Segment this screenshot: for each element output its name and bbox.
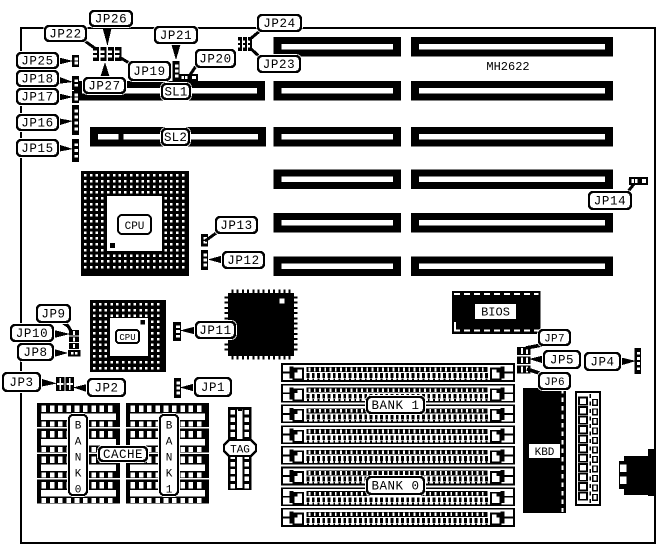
svg-text:JP3: JP3 [9,376,33,390]
svg-text:A: A [75,437,82,449]
svg-text:JP4: JP4 [590,356,614,370]
svg-text:JP24: JP24 [263,17,295,31]
svg-text:JP18: JP18 [21,73,53,87]
svg-text:JP12: JP12 [227,254,259,268]
svg-text:JP20: JP20 [199,53,231,67]
svg-text:CPU: CPU [119,333,135,343]
svg-text:JP27: JP27 [88,80,120,94]
svg-text:KBD: KBD [535,447,555,459]
svg-text:JP13: JP13 [220,219,252,233]
svg-text:JP23: JP23 [263,58,295,72]
svg-text:JP7: JP7 [544,334,565,346]
svg-text:JP9: JP9 [41,308,65,322]
svg-text:JP14: JP14 [594,195,626,209]
svg-text:JP22: JP22 [49,28,81,42]
svg-text:B: B [75,421,82,433]
svg-text:BANK 1: BANK 1 [371,399,419,413]
svg-text:A: A [166,437,173,449]
svg-text:CACHE: CACHE [103,448,143,462]
svg-text:1: 1 [166,485,173,497]
svg-text:SL2: SL2 [164,131,187,145]
svg-text:JP5: JP5 [550,354,574,368]
svg-text:JP8: JP8 [23,346,47,360]
svg-text:BANK 0: BANK 0 [371,480,419,494]
svg-text:JP21: JP21 [160,29,192,43]
svg-text:CPU: CPU [125,221,145,233]
svg-text:JP26: JP26 [95,13,127,27]
svg-text:JP17: JP17 [21,91,53,105]
svg-text:N: N [75,453,82,465]
svg-text:BIOS: BIOS [481,306,510,320]
svg-text:TAG: TAG [230,445,250,457]
svg-text:N: N [166,453,173,465]
svg-text:K: K [75,469,82,481]
svg-text:0: 0 [75,485,82,497]
svg-text:K: K [166,469,173,481]
svg-text:JP15: JP15 [21,142,53,156]
svg-text:JP25: JP25 [21,55,53,69]
svg-text:JP2: JP2 [94,382,118,396]
svg-text:JP19: JP19 [133,65,165,79]
svg-text:JP1: JP1 [201,381,225,395]
svg-text:SL1: SL1 [164,86,187,100]
svg-text:B: B [166,421,173,433]
svg-text:JP6: JP6 [544,377,565,389]
svg-text:JP16: JP16 [21,117,53,131]
svg-text:JP10: JP10 [16,327,48,341]
svg-text:MH2622: MH2622 [486,60,529,74]
svg-text:JP11: JP11 [199,324,231,338]
